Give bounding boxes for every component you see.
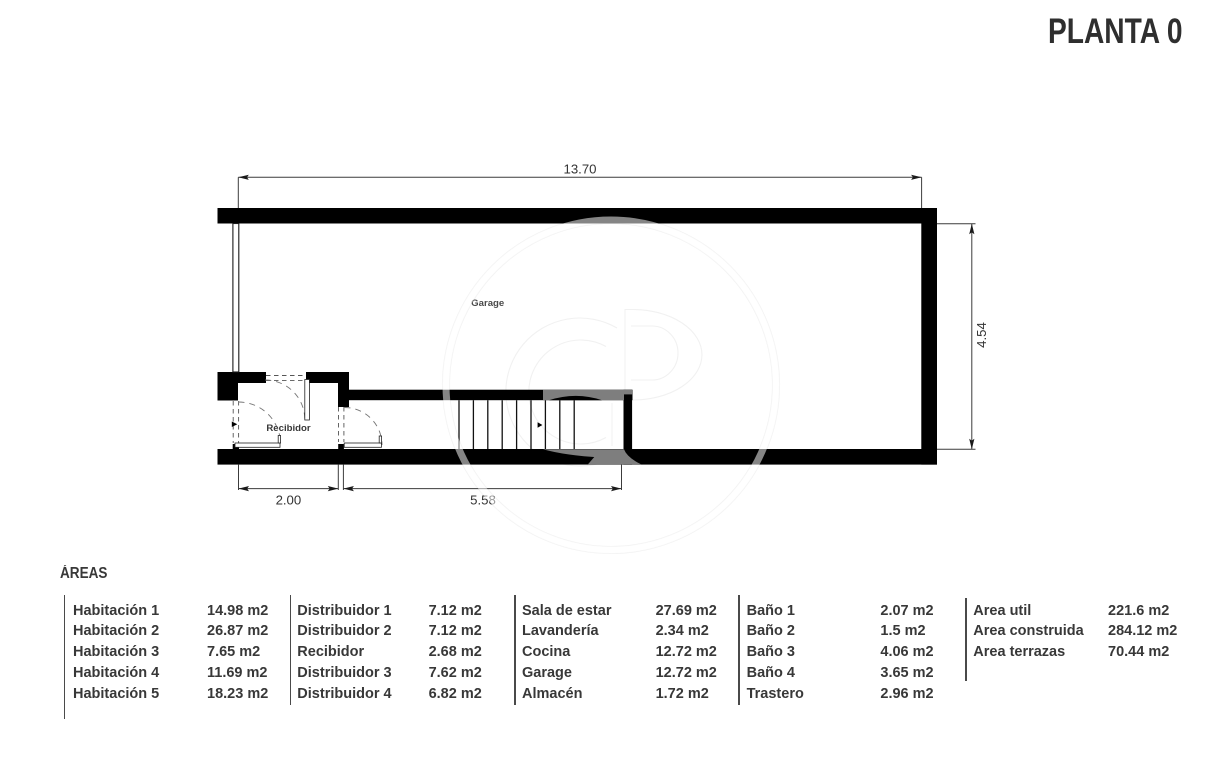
svg-text:2.00: 2.00 (276, 493, 302, 508)
svg-text:Recibidor: Recibidor (266, 423, 311, 434)
svg-text:Garage: Garage (471, 298, 504, 309)
svg-text:4.54: 4.54 (974, 322, 989, 348)
svg-text:13.70: 13.70 (563, 162, 596, 177)
